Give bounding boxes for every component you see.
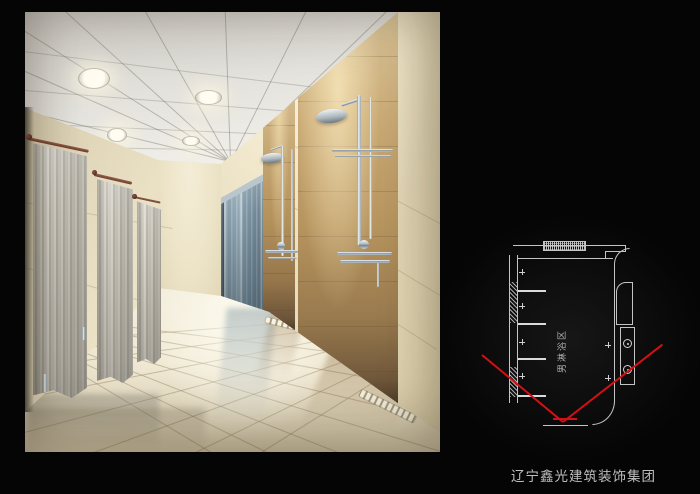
company-name-text: 辽宁鑫光建筑装饰集团 (511, 465, 681, 483)
plan-stall-divider (518, 358, 546, 360)
plan-stall-divider (518, 290, 546, 292)
plan-fixture-mark (519, 373, 525, 379)
plan-fixture-mark (519, 269, 525, 275)
plan-bench-outline (616, 282, 633, 325)
plan-fixture-mark (605, 375, 611, 381)
plan-wall-line (517, 258, 613, 259)
plan-left-wall (517, 255, 518, 403)
photo-vignette (25, 12, 440, 452)
plan-dimension-block (543, 241, 586, 251)
plan-wall-hatch (510, 282, 517, 323)
rendering-photo (25, 12, 440, 452)
plan-fixture-mark (519, 303, 525, 309)
floor-plan: 男淋浴区 (470, 238, 675, 438)
plan-wall-step (605, 251, 606, 259)
plan-fixture-mark (605, 342, 611, 348)
plan-threshold-line (543, 425, 588, 426)
presentation-board: 男淋浴区 辽宁鑫光建筑装饰集团 (0, 0, 700, 494)
plan-drain-symbol (623, 339, 632, 348)
plan-stall-divider (518, 323, 546, 325)
plan-room-label: 男淋浴区 (557, 321, 569, 381)
plan-drain-dot (627, 343, 629, 345)
view-cone-tick (553, 418, 577, 420)
plan-fixture-mark (519, 339, 525, 345)
